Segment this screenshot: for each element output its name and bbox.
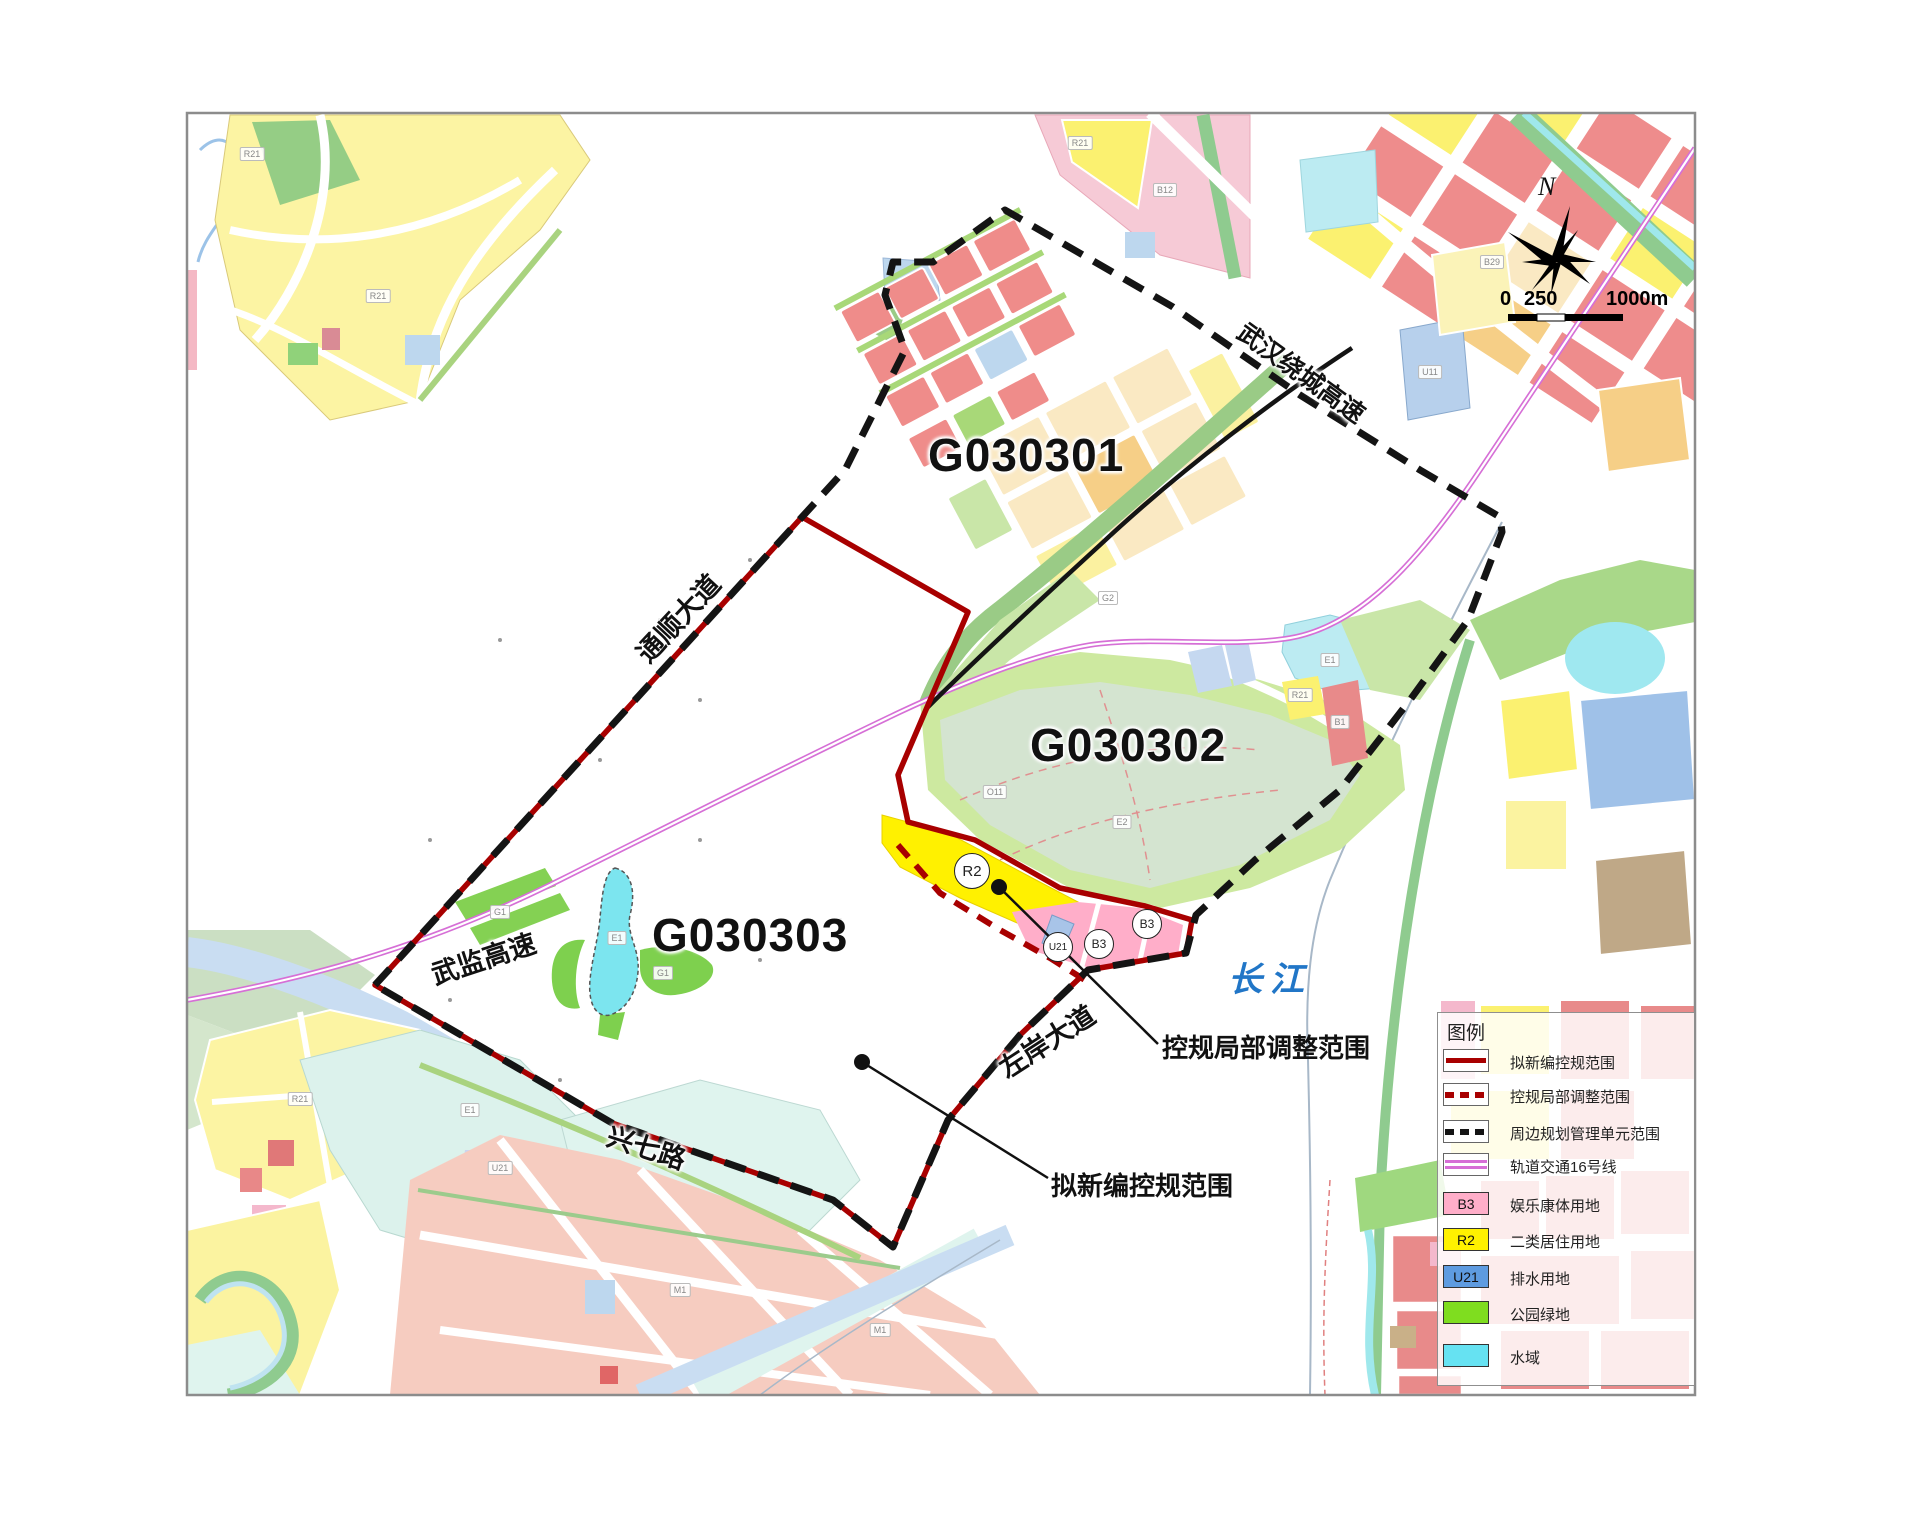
parcel-code-chip: B12	[1153, 183, 1177, 197]
parcel-badge-r2: R2	[954, 853, 990, 889]
parcel-badge-b3-2: B3	[1132, 909, 1162, 939]
north-label: N	[1538, 172, 1555, 202]
unit-label-g030303: G030303	[652, 908, 848, 962]
legend-label: 水域	[1510, 1347, 1540, 1368]
legend-label: 二类居住用地	[1510, 1231, 1600, 1252]
scale-zero-label: 0	[1500, 288, 1511, 311]
scale-mid-label: 250	[1524, 288, 1557, 311]
parcel-code-chip: R21	[240, 147, 265, 161]
legend-row-adjustment: 控规局部调整范围	[1438, 1083, 1694, 1107]
legend-row-new-plan: 拟新编控规范围	[1438, 1049, 1694, 1073]
parcel-code-chip: R21	[1288, 688, 1313, 702]
parcel-code-chip: B29	[1480, 255, 1504, 269]
legend-row-b3: B3 娱乐康体用地	[1438, 1192, 1694, 1216]
parcel-code-chip: E1	[607, 931, 626, 945]
parcel-code-chip: E2	[1112, 815, 1131, 829]
callout-adjustment-scope: 控规局部调整范围	[1162, 1028, 1370, 1065]
river-label-yangtze: 长江	[1228, 952, 1312, 1001]
black-dashed-line-swatch	[1443, 1120, 1489, 1143]
callout-new-plan-scope: 拟新编控规范围	[1051, 1166, 1233, 1203]
legend-panel: 图例 拟新编控规范围 控规局部调整范围 周边规划管理单元范围 轨道交通16号线 …	[1437, 1012, 1695, 1386]
parcel-badge-u21: U21	[1043, 932, 1073, 962]
parcel-code-chip: E1	[460, 1103, 479, 1117]
parcel-code-chip: E1	[1320, 653, 1339, 667]
scale-end-label: 1000m	[1606, 288, 1668, 311]
legend-label: 公园绿地	[1510, 1304, 1570, 1325]
swatch-code: R2	[1457, 1232, 1475, 1248]
u21-swatch: U21	[1443, 1265, 1489, 1288]
legend-title: 图例	[1447, 1018, 1485, 1045]
rail-line-swatch	[1443, 1153, 1489, 1176]
parcel-code-chip: R21	[1068, 136, 1093, 150]
park-green-swatch	[1443, 1301, 1489, 1324]
legend-label: 控规局部调整范围	[1510, 1086, 1630, 1107]
red-solid-line-swatch	[1443, 1049, 1489, 1072]
swatch-code: U21	[1453, 1269, 1479, 1285]
parcel-code-chip: B1	[1330, 715, 1349, 729]
unit-label-g030301: G030301	[928, 428, 1124, 482]
parcel-badge-b3-1: B3	[1084, 929, 1114, 959]
legend-label: 拟新编控规范围	[1510, 1052, 1615, 1073]
parcel-code-chip: G1	[653, 966, 673, 980]
parcel-code-chip: U11	[1418, 365, 1442, 379]
legend-label: 轨道交通16号线	[1510, 1156, 1617, 1177]
scale-bar	[1508, 314, 1623, 321]
swatch-code: B3	[1457, 1196, 1474, 1212]
legend-row-r2: R2 二类居住用地	[1438, 1228, 1694, 1252]
red-dashed-line-swatch	[1443, 1083, 1489, 1106]
legend-row-metro-line: 轨道交通16号线	[1438, 1153, 1694, 1177]
parcel-code-chip: R21	[288, 1092, 313, 1106]
water-swatch	[1443, 1344, 1489, 1367]
legend-row-park-green: 公园绿地	[1438, 1301, 1694, 1325]
r2-swatch: R2	[1443, 1228, 1489, 1251]
parcel-code-chip: G1	[490, 905, 510, 919]
legend-label: 娱乐康体用地	[1510, 1195, 1600, 1216]
legend-label: 周边规划管理单元范围	[1510, 1123, 1660, 1144]
legend-row-u21: U21 排水用地	[1438, 1265, 1694, 1289]
map-canvas: G030301 G030302 G030303 通顺大道 武监高速 兴七路 左岸…	[0, 0, 1905, 1518]
parcel-code-chip: M1	[670, 1283, 691, 1297]
b3-swatch: B3	[1443, 1192, 1489, 1215]
parcel-code-chip: R21	[366, 289, 391, 303]
legend-row-water: 水域	[1438, 1344, 1694, 1368]
parcel-code-chip: O11	[983, 785, 1007, 799]
unit-label-g030302: G030302	[1030, 718, 1226, 772]
parcel-code-chip: U21	[488, 1161, 513, 1175]
parcel-code-chip: G2	[1098, 591, 1118, 605]
legend-row-management-unit: 周边规划管理单元范围	[1438, 1120, 1694, 1144]
legend-label: 排水用地	[1510, 1268, 1570, 1289]
parcel-code-chip: M1	[870, 1323, 891, 1337]
